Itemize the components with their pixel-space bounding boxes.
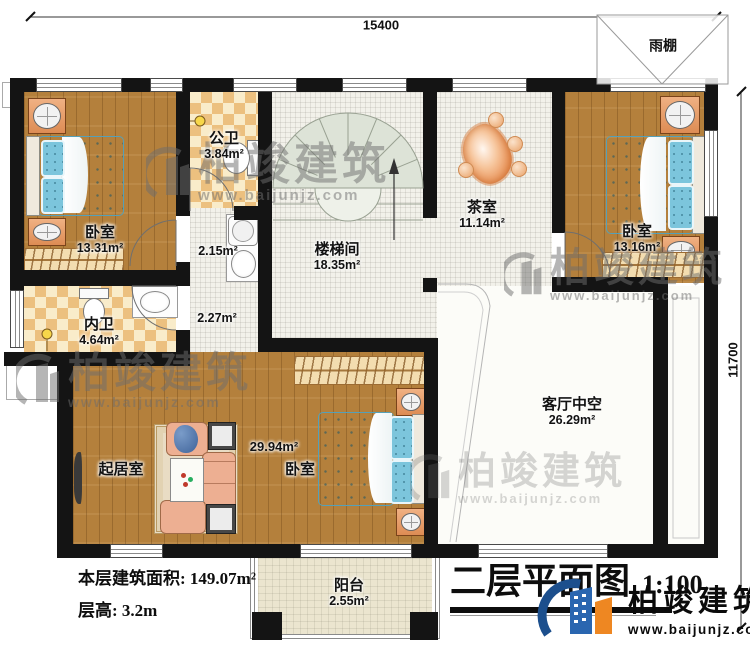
room-area: 26.29m²: [542, 413, 602, 427]
wall-stub: [423, 278, 437, 292]
room-label-public-bath: 公卫 3.84m²: [204, 131, 244, 161]
wall-master-bath-bottom: [4, 352, 190, 366]
floor-notes: 本层建筑面积: 149.07m² 层高: 3.2m: [78, 564, 256, 621]
pillow: [390, 416, 414, 460]
wall-left-lower: [57, 366, 73, 544]
room-area: 2.55m²: [329, 594, 369, 608]
room-label-living-room: 起居室: [98, 462, 143, 479]
pillow: [668, 185, 694, 230]
wall-master-bath-right: [176, 330, 190, 356]
wall-tea-right: [552, 92, 565, 233]
nightstand: [28, 218, 66, 246]
window: [36, 78, 122, 92]
balcony-post: [410, 612, 438, 640]
room-name: 公卫: [209, 130, 239, 147]
side-table: [206, 504, 236, 534]
brand-url: www.baijunjz.com: [628, 622, 750, 637]
wardrobe: [602, 252, 706, 278]
bed-sheet: [62, 137, 88, 213]
wardrobe: [294, 356, 426, 385]
sink-basin: [140, 291, 170, 313]
label-canopy: 雨棚: [649, 38, 677, 53]
room-label-stair-hall: 楼梯间 18.35m²: [314, 242, 361, 272]
room-area: 11.14m²: [459, 216, 505, 230]
flowers-icon: [181, 473, 186, 478]
wall-living-top: [258, 338, 438, 352]
brand-logo-icon: [534, 576, 622, 640]
floor-plan-canvas: 柏竣建筑 www.baijunjz.com 柏竣建筑 www.baijunjz.…: [0, 0, 750, 648]
seat-cushion: [507, 136, 523, 152]
dimension-right: 11700: [726, 342, 741, 377]
nightstand: [396, 388, 426, 416]
brand-name: 柏竣建筑: [628, 576, 750, 620]
balcony-post: [252, 612, 282, 640]
wall-stair-left: [258, 92, 272, 338]
pillow: [41, 140, 65, 177]
nightstand: [28, 98, 66, 134]
wall-stair-right: [423, 92, 437, 218]
side-table-top: [210, 508, 232, 530]
lamp-icon: [401, 393, 421, 411]
pillow: [41, 177, 65, 214]
window: [452, 78, 527, 92]
room-label-bedroom3: 卧室: [285, 462, 315, 479]
room-area: 3.84m²: [204, 147, 244, 161]
area-label-corridor-lower: 2.27m²: [197, 312, 237, 326]
floor-area-note: 本层建筑面积: 149.07m²: [78, 564, 256, 589]
lamp-icon: [33, 103, 61, 129]
window: [10, 290, 24, 348]
window: [342, 78, 407, 92]
room-area: 29.94m²: [250, 439, 298, 454]
room-name: 内卫: [84, 316, 114, 333]
seat-cushion: [488, 112, 504, 128]
window: [150, 78, 183, 92]
brand-logo: 柏竣建筑 www.baijunjz.com: [534, 576, 750, 640]
room-area: 13.16m²: [614, 240, 661, 254]
room-name: 雨棚: [649, 37, 677, 53]
washer-drum-icon: [232, 220, 254, 242]
pillow: [668, 140, 694, 185]
side-table-top: [212, 426, 232, 446]
floor-height-note: 层高: 3.2m: [78, 596, 256, 621]
room-label-living-void: 客厅中空 26.29m²: [542, 397, 602, 427]
room-area: 2.15m²: [198, 244, 238, 258]
lamp-icon: [33, 223, 61, 241]
room-area: 4.64m²: [79, 333, 119, 347]
room-name: 起居室: [98, 461, 143, 478]
area-label-shared: 29.94m²: [250, 440, 298, 454]
bed-sheet: [640, 137, 666, 231]
dimension-top: 15400: [363, 18, 399, 33]
seat-cushion: [458, 162, 474, 178]
person-figure: [174, 425, 198, 453]
seat-cushion: [511, 161, 527, 177]
room-label-bedroom2: 卧室 13.16m²: [614, 224, 661, 254]
window-sill: [6, 362, 58, 400]
room-area: 18.35m²: [314, 258, 361, 272]
window: [110, 544, 163, 558]
armchair: [160, 500, 206, 534]
nightstand: [396, 508, 426, 536]
window: [233, 78, 297, 92]
lamp-icon: [665, 101, 695, 129]
washer: [228, 216, 258, 246]
wall-public-bath-bottom: [234, 206, 258, 220]
wall-bedroom2-bottom: [552, 277, 668, 292]
room-area: 13.31m²: [77, 241, 124, 255]
room-label-bedroom1: 卧室 13.31m²: [77, 225, 124, 255]
wall-void-right: [653, 283, 668, 544]
wall-left-upper: [10, 78, 24, 290]
room-label-balcony: 阳台 2.55m²: [329, 578, 369, 608]
nightstand: [660, 96, 700, 134]
window: [704, 130, 718, 217]
lamp-icon: [401, 513, 421, 531]
room-name: 客厅中空: [542, 396, 602, 413]
bed-sheet: [368, 413, 392, 503]
room-name: 阳台: [334, 577, 364, 594]
room-name: 卧室: [622, 223, 652, 240]
room-name: 楼梯间: [314, 241, 359, 258]
side-table: [208, 422, 236, 450]
room-name: 卧室: [285, 461, 315, 478]
room-area: 2.27m²: [197, 311, 237, 325]
pillow: [390, 460, 414, 504]
room-label-tea-room: 茶室 11.14m²: [459, 200, 505, 230]
wall-bedroom1-bottom: [10, 270, 190, 286]
balcony-door: [300, 544, 412, 558]
room-label-master-bath: 内卫 4.64m²: [79, 317, 119, 347]
tv: [74, 452, 82, 504]
wall-bedroom3-right: [424, 338, 438, 544]
window: [610, 78, 706, 92]
coffee-table: [170, 458, 204, 502]
bed-headboard: [26, 136, 40, 216]
area-label-corridor-upper: 2.15m²: [198, 245, 238, 259]
room-name: 卧室: [85, 224, 115, 241]
wall-bedroom1-right: [176, 92, 190, 216]
room-name: 茶室: [467, 199, 497, 216]
